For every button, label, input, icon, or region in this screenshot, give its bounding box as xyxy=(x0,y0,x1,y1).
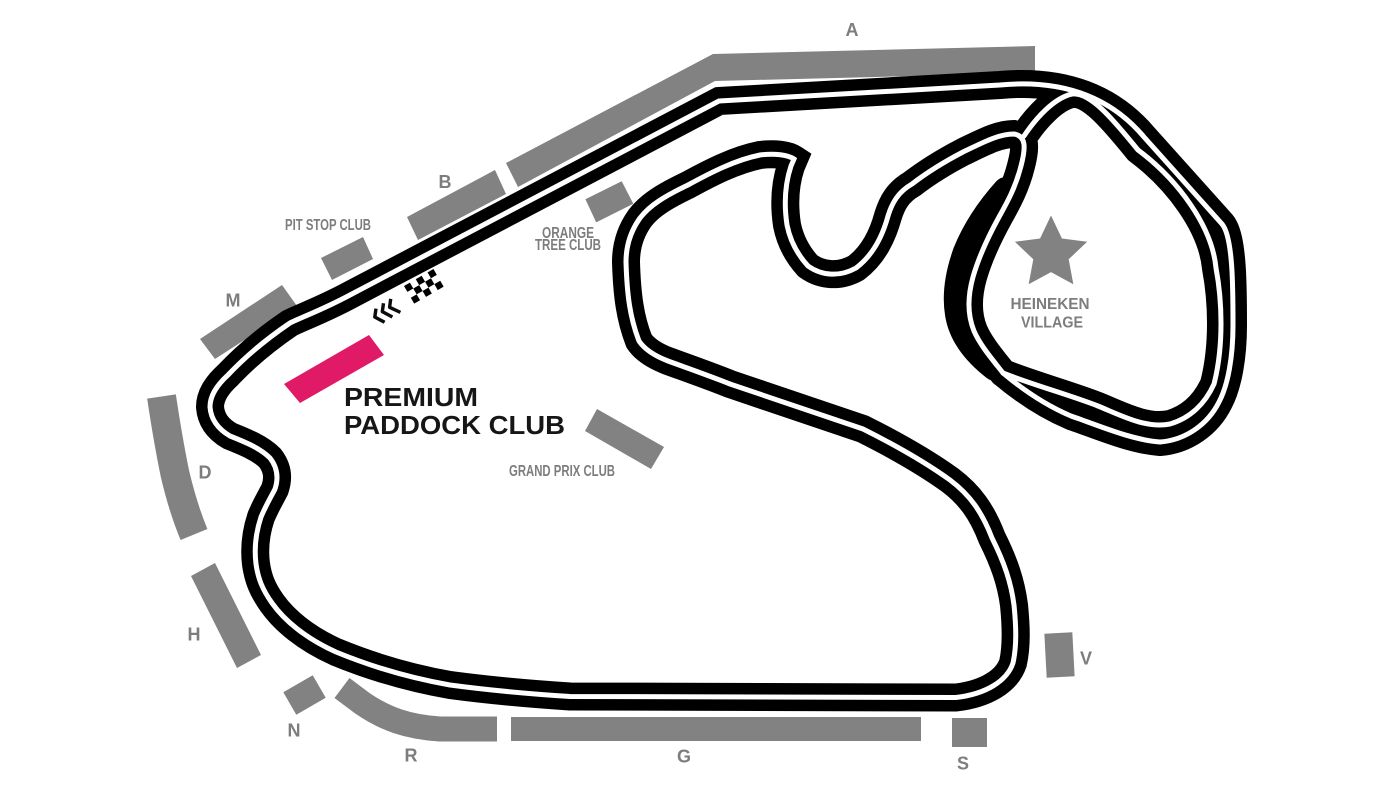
svg-text:GRAND PRIX CLUB: GRAND PRIX CLUB xyxy=(509,463,615,480)
svg-text:V: V xyxy=(1080,649,1092,669)
svg-text:G: G xyxy=(677,747,691,767)
svg-text:S: S xyxy=(957,754,969,774)
svg-text:D: D xyxy=(199,463,212,483)
svg-text:VILLAGE: VILLAGE xyxy=(1021,315,1083,332)
svg-text:TREE CLUB: TREE CLUB xyxy=(535,237,601,254)
svg-text:B: B xyxy=(439,172,452,192)
svg-text:R: R xyxy=(405,746,418,766)
svg-text:H: H xyxy=(188,625,201,645)
svg-text:M: M xyxy=(226,291,241,311)
svg-text:HEINEKEN: HEINEKEN xyxy=(1011,296,1090,313)
svg-text:PADDOCK CLUB: PADDOCK CLUB xyxy=(344,412,565,440)
svg-text:PREMIUM: PREMIUM xyxy=(344,384,478,412)
svg-text:A: A xyxy=(846,20,859,40)
svg-text:PIT STOP CLUB: PIT STOP CLUB xyxy=(285,217,371,234)
svg-text:N: N xyxy=(288,721,301,741)
